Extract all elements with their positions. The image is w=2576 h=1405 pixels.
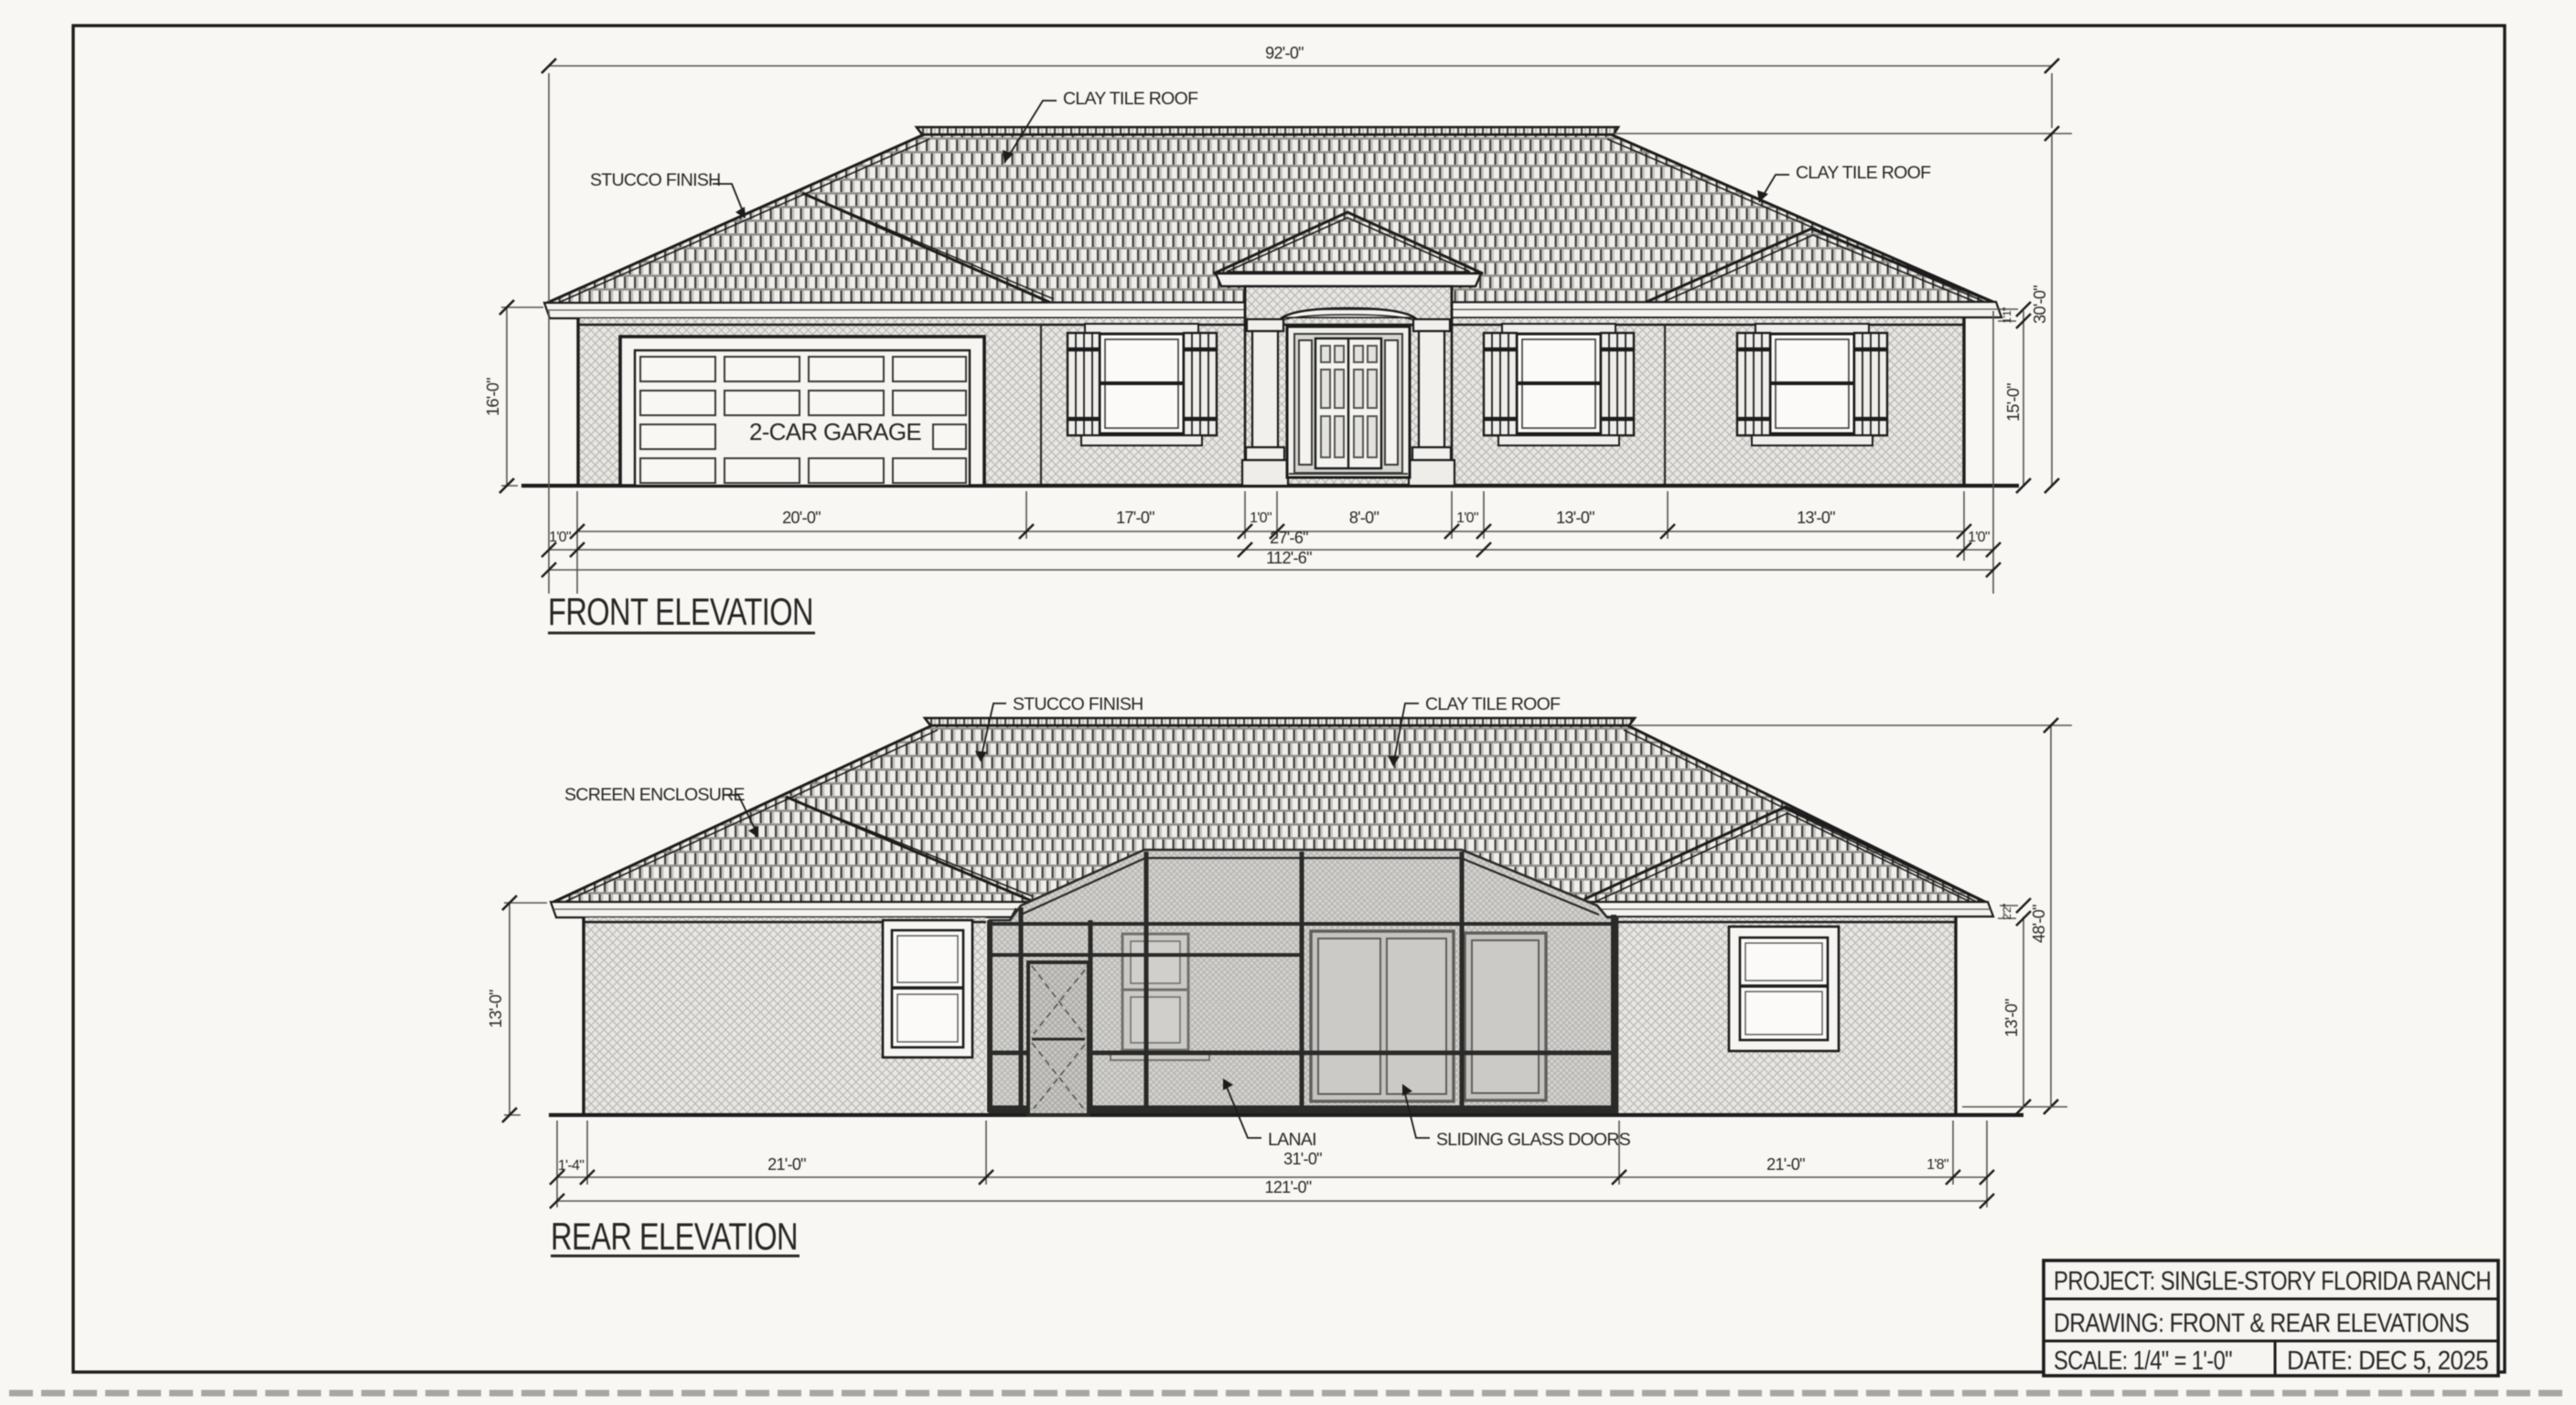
svg-text:1'0": 1'0" xyxy=(1456,510,1478,526)
svg-text:21'-0": 21'-0" xyxy=(1766,1155,1805,1174)
svg-text:13'-0": 13'-0" xyxy=(1556,509,1594,527)
svg-text:30'-0": 30'-0" xyxy=(2031,285,2049,324)
svg-text:CLAY TILE ROOF: CLAY TILE ROOF xyxy=(1063,89,1198,109)
svg-text:48'-0": 48'-0" xyxy=(2030,905,2048,943)
svg-text:2'2": 2'2" xyxy=(2001,904,2013,920)
svg-text:31'-0": 31'-0" xyxy=(1283,1150,1322,1168)
svg-text:121'-0": 121'-0" xyxy=(1265,1178,1312,1196)
svg-text:STUCCO FINISH: STUCCO FINISH xyxy=(1013,694,1143,714)
svg-text:SCALE: 1/4" = 1'-0": SCALE: 1/4" = 1'-0" xyxy=(2054,1346,2232,1376)
svg-text:21'-0": 21'-0" xyxy=(767,1155,806,1174)
svg-text:DRAWING: FRONT & REAR ELEVATIO: DRAWING: FRONT & REAR ELEVATIONS xyxy=(2054,1309,2469,1338)
svg-text:SLIDING GLASS DOORS: SLIDING GLASS DOORS xyxy=(1436,1130,1631,1150)
svg-text:FRONT ELEVATION: FRONT ELEVATION xyxy=(548,590,813,633)
svg-text:1'0": 1'0" xyxy=(549,530,571,545)
svg-text:92'-0": 92'-0" xyxy=(1265,44,1304,62)
svg-text:1'0": 1'0" xyxy=(1250,510,1272,526)
svg-text:1'-4": 1'-4" xyxy=(558,1158,584,1174)
svg-text:PROJECT: SINGLE-STORY FLORIDA: PROJECT: SINGLE-STORY FLORIDA RANCH xyxy=(2054,1267,2491,1296)
svg-text:20'-0": 20'-0" xyxy=(782,509,821,527)
svg-text:17'-0": 17'-0" xyxy=(1116,509,1154,527)
svg-text:STUCCO FINISH: STUCCO FINISH xyxy=(590,170,721,190)
svg-text:CLAY TILE ROOF: CLAY TILE ROOF xyxy=(1796,163,1931,183)
svg-text:15'-0": 15'-0" xyxy=(2004,383,2023,422)
svg-text:CLAY TILE ROOF: CLAY TILE ROOF xyxy=(1425,694,1561,714)
svg-text:REAR ELEVATION: REAR ELEVATION xyxy=(551,1215,798,1258)
svg-text:LANAI: LANAI xyxy=(1268,1130,1316,1150)
svg-text:16'-0": 16'-0" xyxy=(484,378,502,416)
svg-text:13'-0": 13'-0" xyxy=(1797,509,1835,527)
svg-text:13'-0": 13'-0" xyxy=(2002,999,2021,1037)
svg-text:1'8": 1'8" xyxy=(1927,1157,1948,1173)
svg-text:1'1": 1'1" xyxy=(2001,307,2013,324)
svg-text:8'-0": 8'-0" xyxy=(1349,509,1379,527)
svg-text:112'-6": 112'-6" xyxy=(1266,549,1312,567)
svg-text:SCREEN ENCLOSURE: SCREEN ENCLOSURE xyxy=(564,785,746,805)
svg-text:13'-0": 13'-0" xyxy=(487,990,505,1028)
svg-text:1'0": 1'0" xyxy=(1968,530,1990,545)
svg-text:27'-6": 27'-6" xyxy=(1270,529,1308,547)
svg-text:DATE: DEC 5, 2025: DATE: DEC 5, 2025 xyxy=(2287,1346,2488,1376)
svg-text:2-CAR GARAGE: 2-CAR GARAGE xyxy=(749,418,921,445)
